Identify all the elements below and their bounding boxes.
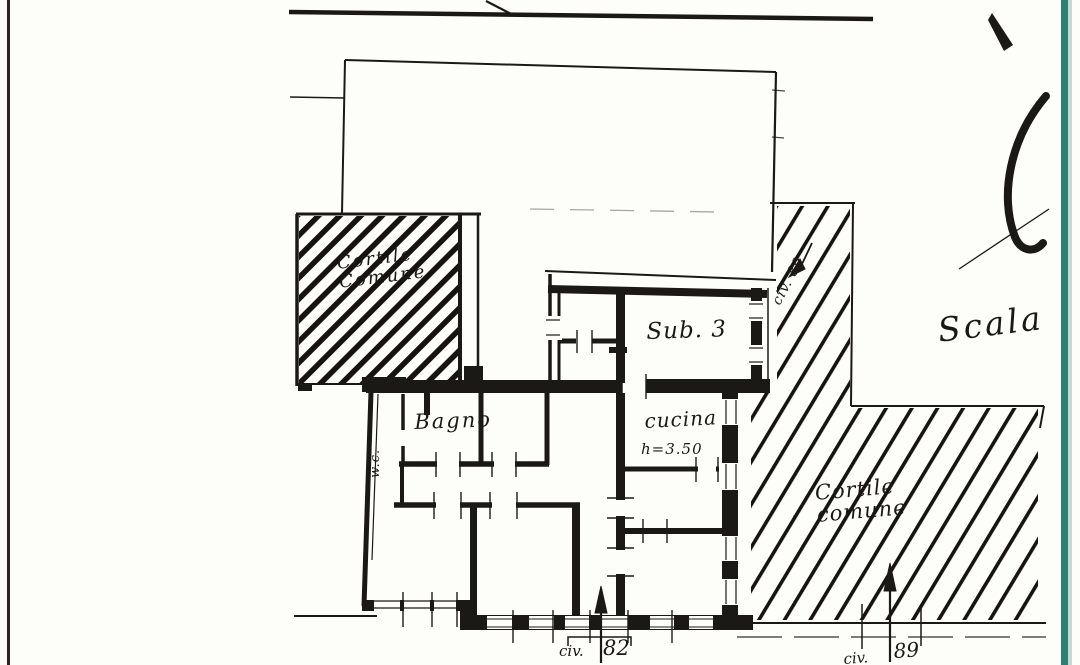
floor-plan-drawing xyxy=(0,0,1080,665)
civ89-number: 89 xyxy=(893,639,920,662)
civ82-number: 82 xyxy=(603,637,630,659)
pen-stroke-mark xyxy=(988,13,1013,51)
courtyard-left-hatch xyxy=(296,214,483,392)
room-label-sub3: Sub. 3 xyxy=(646,317,727,344)
room-label-wc: w.c. xyxy=(369,449,383,478)
handwritten-marks-top-right xyxy=(959,13,1049,269)
handwritten-arc xyxy=(1008,96,1046,250)
civ89-prefix: civ. xyxy=(843,650,869,665)
entrance-arrow-civ82 xyxy=(595,586,607,613)
cucina-height-note: h=3.50 xyxy=(641,442,703,458)
hatch-area-left xyxy=(299,216,458,383)
top-boundary-lines xyxy=(289,1,873,212)
scanned-floor-plan-page: Cortile Comune Sub. 3 Bagno w.c. cucina … xyxy=(0,0,1080,665)
room-label-courtyard-right: Cortile comune xyxy=(814,474,907,526)
room-label-bagno: Bagno xyxy=(414,408,492,433)
civ82-prefix: civ. xyxy=(559,644,584,660)
room-label-cucina: cucina xyxy=(644,407,717,432)
